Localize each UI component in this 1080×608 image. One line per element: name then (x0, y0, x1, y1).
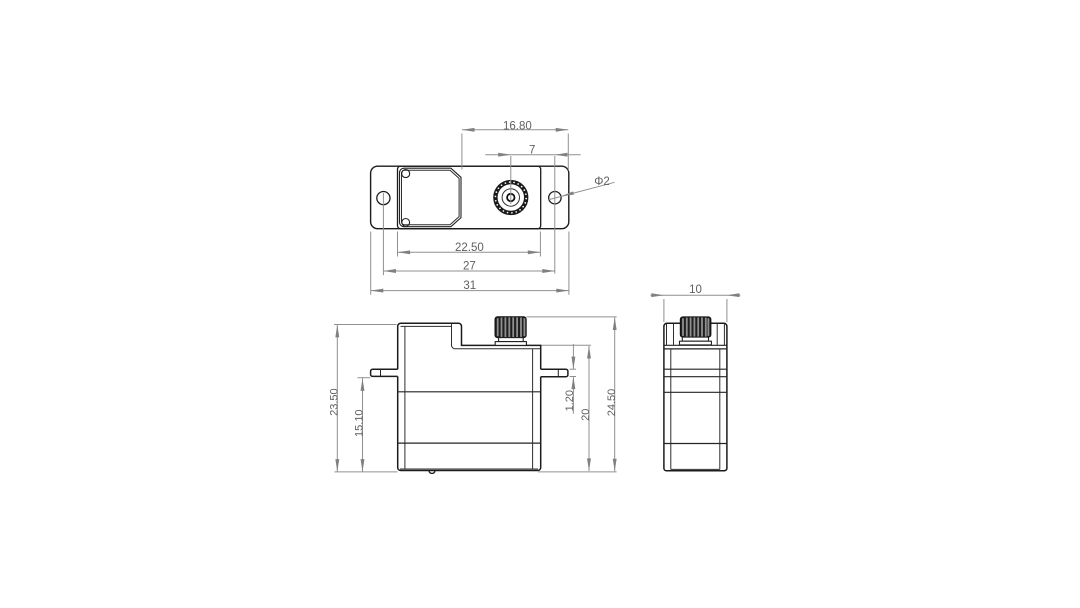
svg-text:22.50: 22.50 (455, 242, 484, 254)
svg-text:16.80: 16.80 (503, 120, 532, 132)
svg-text:7: 7 (529, 145, 535, 157)
svg-text:23.50: 23.50 (328, 388, 340, 416)
svg-text:Φ2: Φ2 (594, 176, 610, 188)
svg-text:15.10: 15.10 (354, 409, 366, 437)
svg-text:10: 10 (689, 284, 702, 296)
svg-text:31: 31 (463, 280, 476, 292)
svg-text:20: 20 (580, 409, 592, 421)
svg-text:27: 27 (463, 261, 476, 273)
svg-text:1.20: 1.20 (564, 390, 576, 411)
svg-text:24.50: 24.50 (606, 389, 618, 417)
